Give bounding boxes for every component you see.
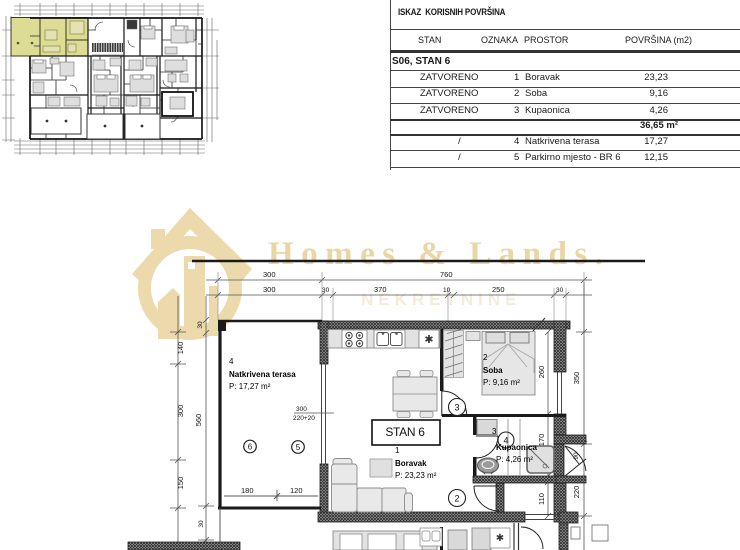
svg-text:90: 90 bbox=[573, 452, 580, 460]
svg-text:2: 2 bbox=[454, 494, 459, 504]
svg-text:220+20: 220+20 bbox=[293, 415, 315, 422]
svg-text:✱: ✱ bbox=[424, 334, 433, 346]
svg-text:4: 4 bbox=[503, 436, 508, 446]
svg-text:P: 9,16 m²: P: 9,16 m² bbox=[483, 378, 520, 387]
svg-text:180: 180 bbox=[241, 486, 254, 495]
svg-text:3: 3 bbox=[454, 403, 459, 413]
svg-text:760: 760 bbox=[440, 270, 453, 279]
svg-text:300: 300 bbox=[176, 405, 185, 418]
svg-text:170: 170 bbox=[537, 434, 546, 447]
svg-text:✱: ✱ bbox=[496, 533, 504, 544]
svg-text:300: 300 bbox=[263, 285, 276, 294]
svg-text:30: 30 bbox=[556, 287, 564, 294]
svg-text:Soba: Soba bbox=[483, 366, 503, 375]
svg-text:140: 140 bbox=[176, 342, 185, 355]
svg-text:30: 30 bbox=[322, 287, 330, 294]
svg-text:Boravak: Boravak bbox=[395, 459, 427, 468]
svg-text:110: 110 bbox=[537, 493, 546, 505]
svg-text:260: 260 bbox=[537, 366, 546, 379]
svg-text:300: 300 bbox=[296, 406, 307, 413]
svg-text:120: 120 bbox=[290, 486, 303, 495]
svg-text:6: 6 bbox=[248, 443, 253, 452]
svg-text:250: 250 bbox=[492, 285, 505, 294]
svg-text:3: 3 bbox=[492, 427, 497, 436]
svg-text:P: 4,26 m²: P: 4,26 m² bbox=[496, 455, 533, 464]
svg-text:STAN 6: STAN 6 bbox=[385, 425, 425, 439]
svg-text:560: 560 bbox=[194, 414, 203, 427]
svg-text:370: 370 bbox=[374, 285, 387, 294]
svg-text:P: 23,23 m²: P: 23,23 m² bbox=[395, 471, 437, 480]
svg-text:P: 17,27 m²: P: 17,27 m² bbox=[229, 382, 271, 391]
svg-text:30: 30 bbox=[198, 520, 205, 528]
svg-text:1: 1 bbox=[395, 446, 400, 455]
svg-text:10: 10 bbox=[443, 287, 451, 294]
svg-text:220: 220 bbox=[572, 486, 581, 499]
svg-text:4: 4 bbox=[229, 357, 234, 366]
svg-text:30: 30 bbox=[197, 321, 204, 329]
svg-text:Kupaonica: Kupaonica bbox=[496, 443, 537, 452]
svg-text:2: 2 bbox=[483, 353, 488, 362]
svg-text:150: 150 bbox=[176, 477, 185, 490]
svg-text:Natkrivena terasa: Natkrivena terasa bbox=[229, 370, 296, 379]
svg-text:300: 300 bbox=[263, 270, 276, 279]
svg-text:5: 5 bbox=[296, 443, 301, 452]
svg-text:350: 350 bbox=[572, 372, 581, 385]
